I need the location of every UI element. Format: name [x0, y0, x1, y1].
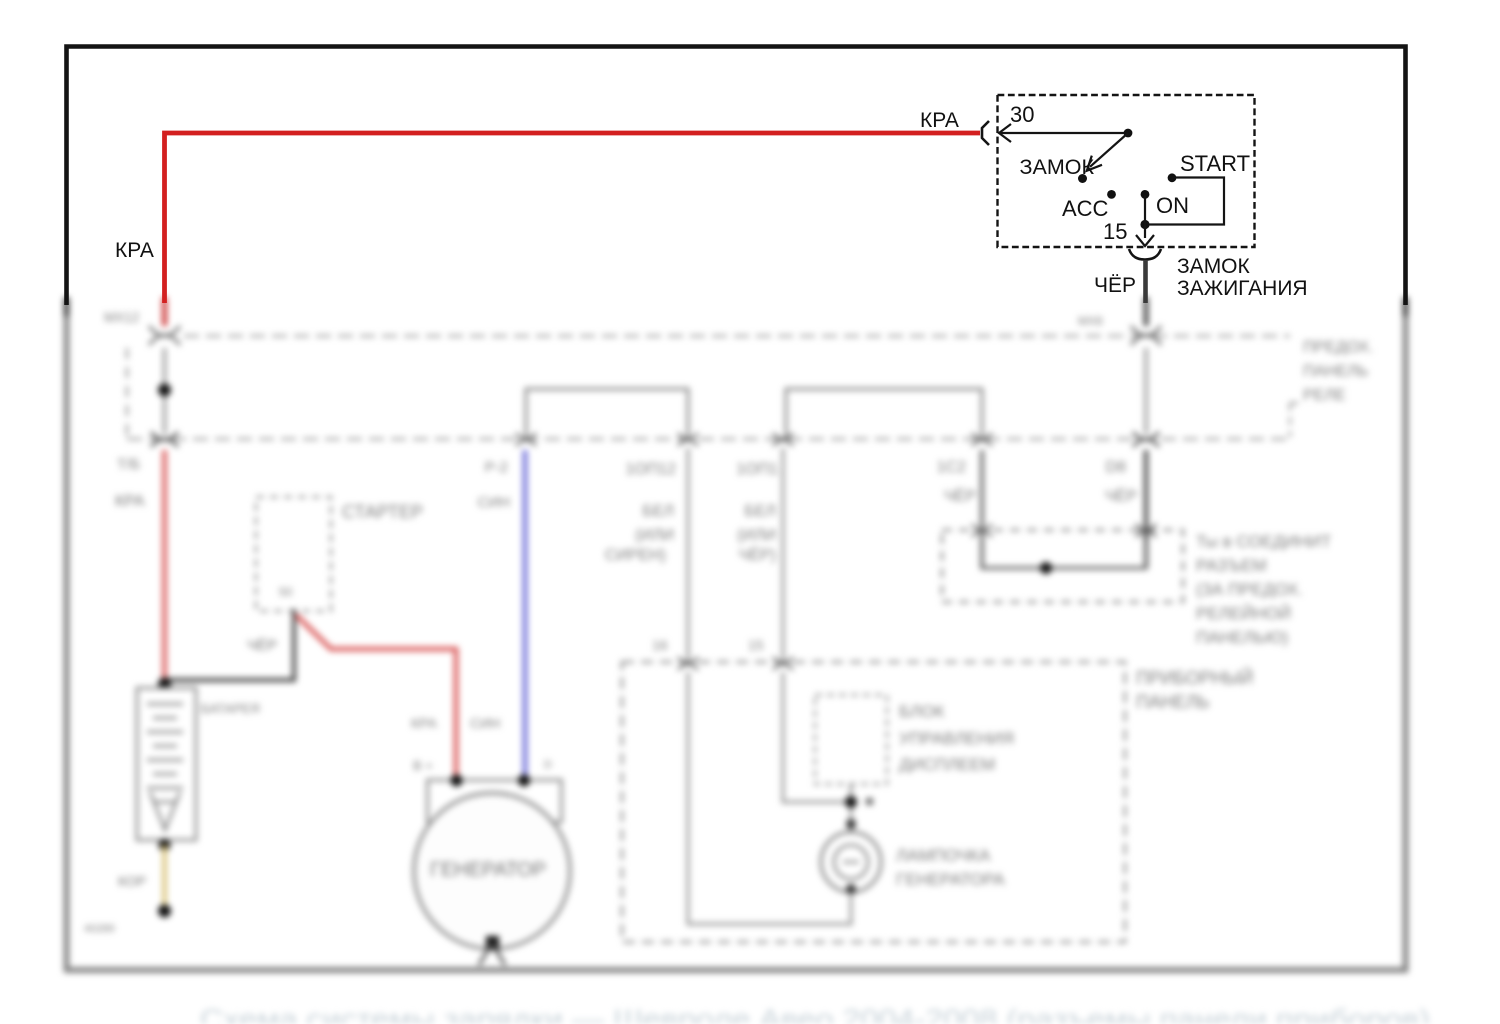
svg-text:30: 30 — [1010, 102, 1034, 127]
svg-text:КРА: КРА — [115, 239, 154, 262]
svg-text:ON: ON — [1156, 193, 1189, 218]
svg-text:ЧЁР: ЧЁР — [1094, 274, 1136, 297]
svg-text:ACC: ACC — [1062, 196, 1109, 221]
svg-text:ЗАМОК: ЗАМОК — [1177, 255, 1251, 278]
svg-text:ЗАЖИГАНИЯ: ЗАЖИГАНИЯ — [1177, 277, 1308, 300]
svg-text:КРА: КРА — [920, 109, 959, 132]
svg-text:ЗАМОК: ЗАМОК — [1020, 155, 1095, 179]
svg-text:15: 15 — [1103, 219, 1127, 244]
svg-text:START: START — [1180, 151, 1250, 176]
